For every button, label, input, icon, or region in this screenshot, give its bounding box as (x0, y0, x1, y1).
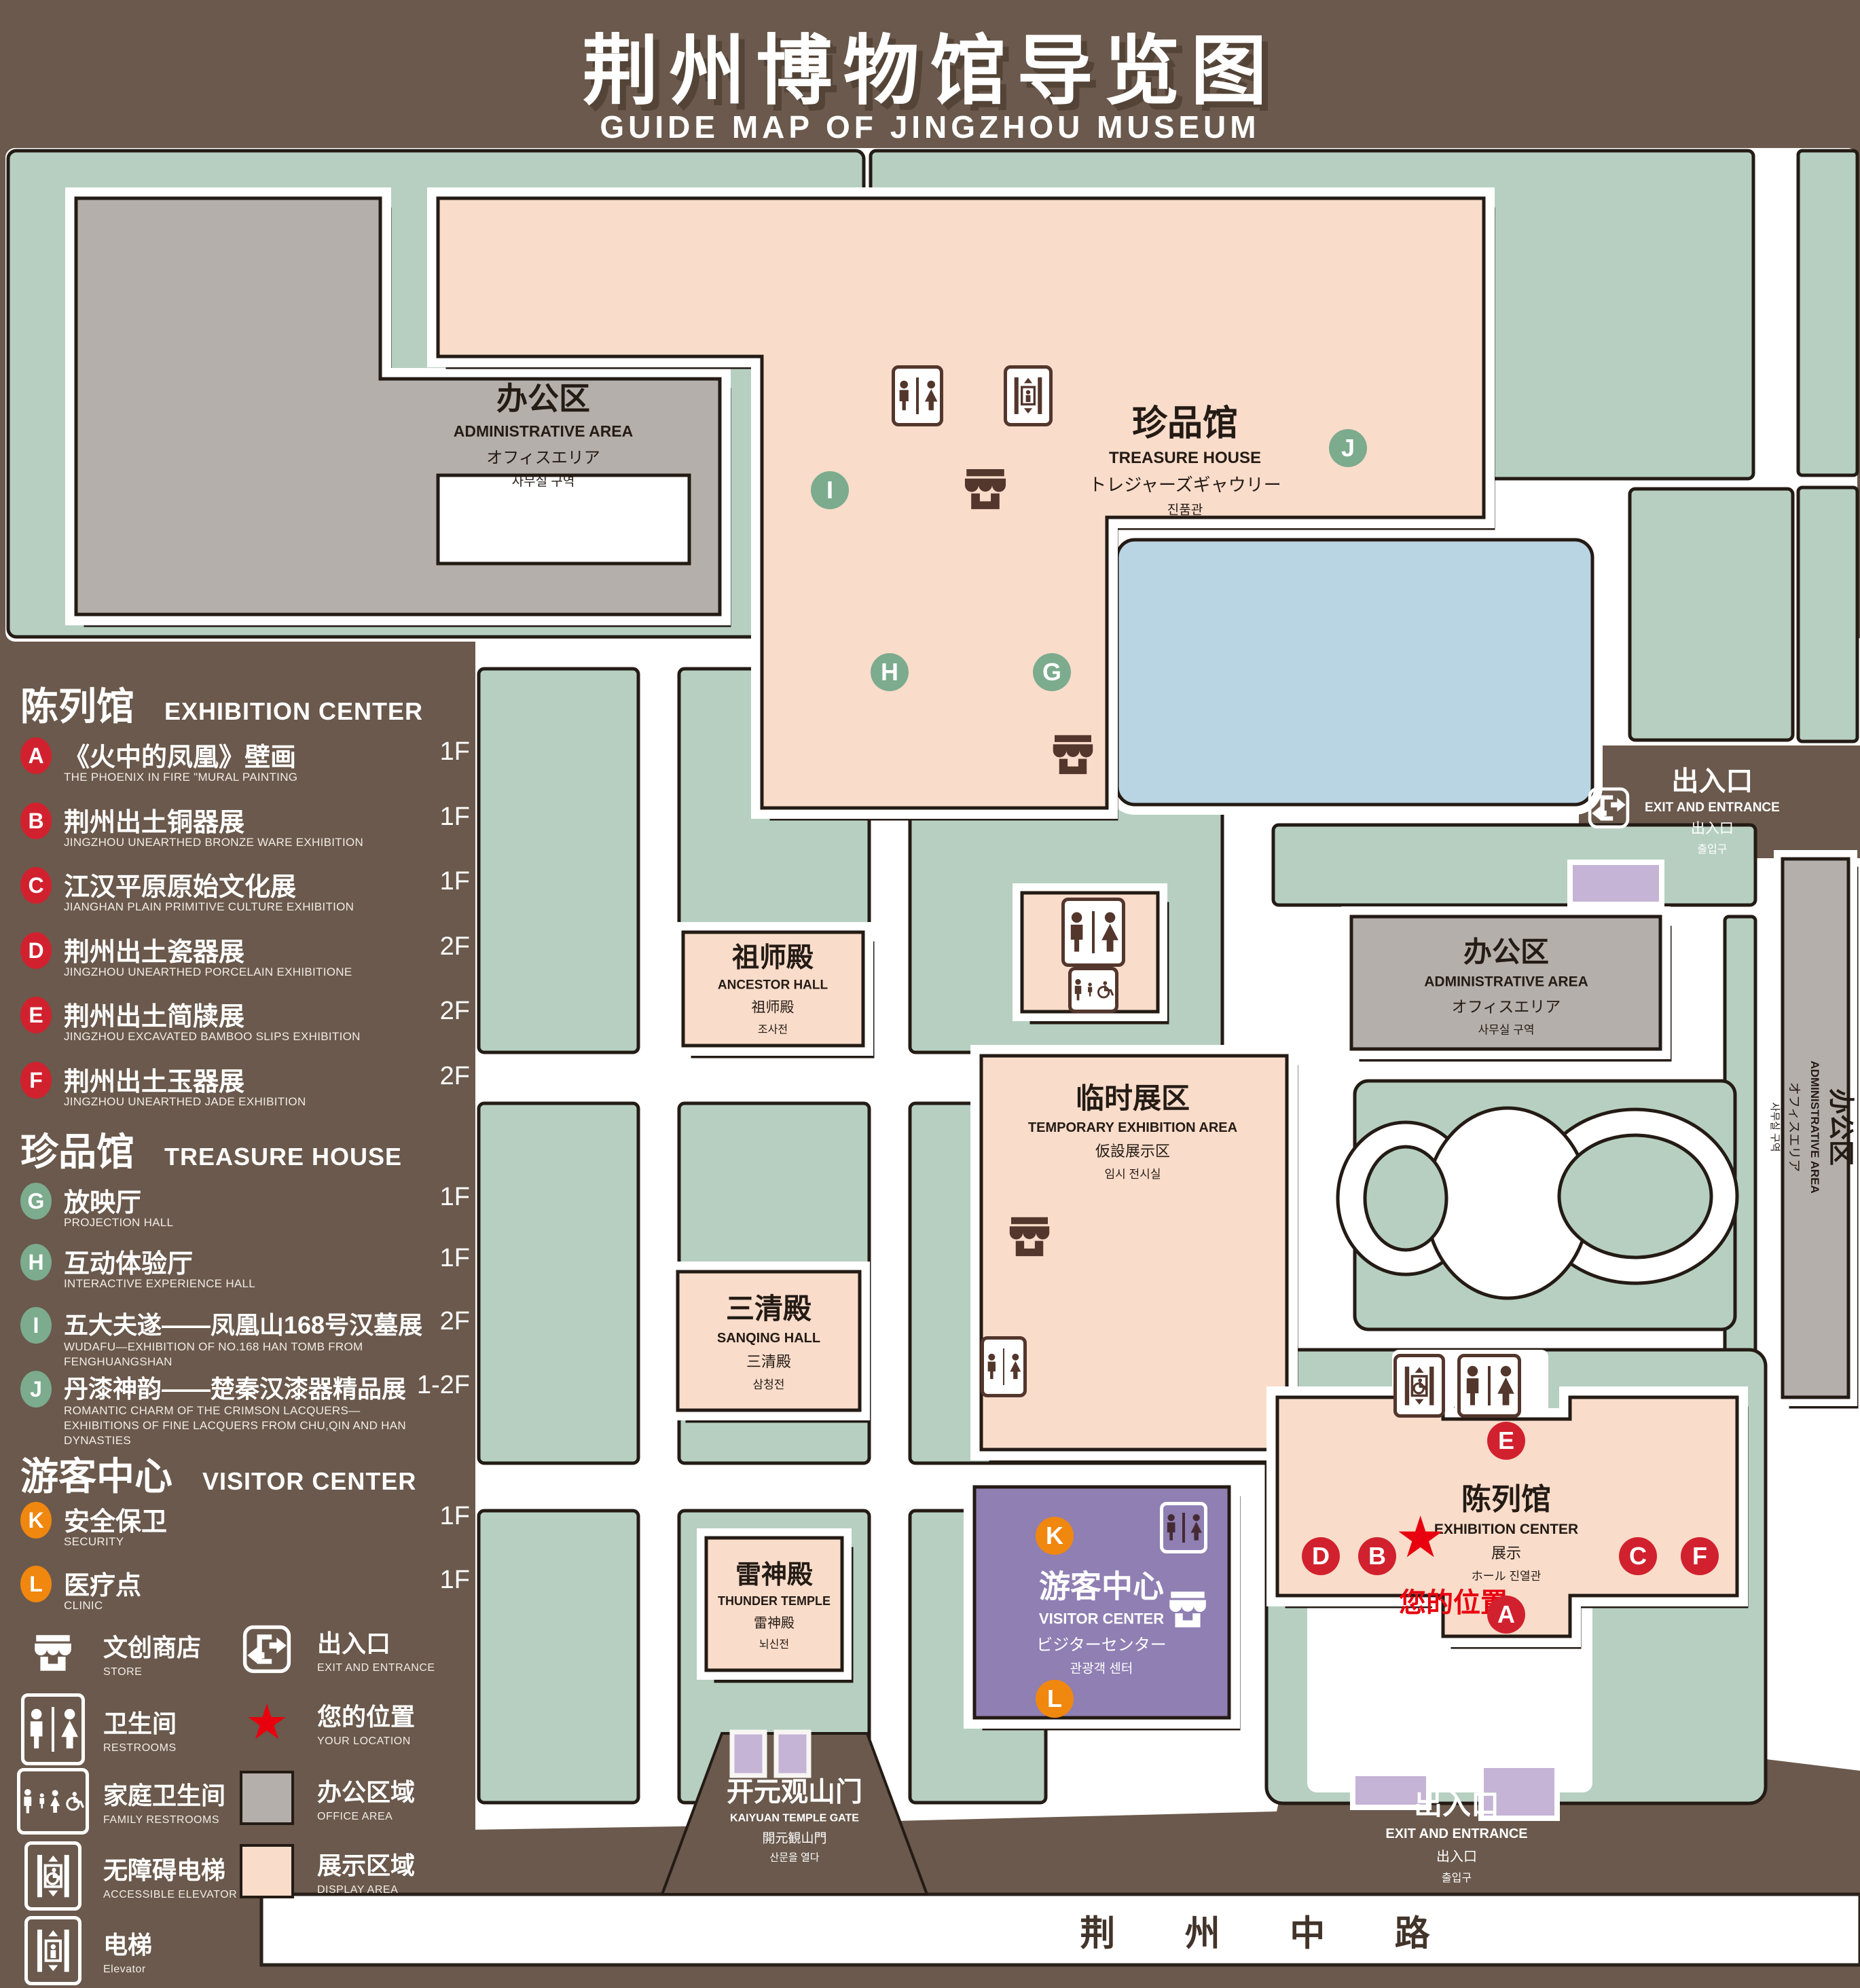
item-title: 安全保卫 (64, 1501, 167, 1538)
sidebar-item-H: H 互动体验厅 1F INTERACTIVE EXPERIENCE HALL (20, 1244, 470, 1302)
label-exit-bottom-right: 出入口 EXIT AND ENTRANCE 出入口 출입구 (1385, 1782, 1527, 1885)
item-floor: 1F (440, 1183, 470, 1212)
road (261, 1894, 1860, 1965)
exit-icon (242, 1625, 291, 1674)
marker-badge-I: I (20, 1307, 52, 1344)
restrooms-icon (1061, 898, 1125, 967)
elevator-icon (24, 1916, 81, 1985)
sidebar-item-C: C 江汉平原原始文化展 1F JIANGHAN PLAIN PRIMITIVE … (20, 867, 470, 925)
your-location-star-icon: ★ (1395, 1509, 1446, 1566)
item-floor: 1F (440, 867, 470, 896)
label-admin-right: 办公区 ADMINISTRATIVE AREA オフィスエリア 사무실 구역 (1424, 929, 1588, 1037)
legend-store: 文创商店STORE (20, 1628, 201, 1678)
restrooms-icon (1160, 1502, 1207, 1553)
marker-badge-G: G (20, 1183, 52, 1219)
section-title-zh: 珍品馆 (20, 1122, 134, 1177)
display-area-swatch (240, 1844, 294, 1898)
sidebar-item-J: J 丹漆神韵——楚秦汉漆器精品展 1-2F ROMANTIC CHARM OF … (20, 1371, 470, 1429)
item-floor: 1F (440, 737, 470, 767)
marker-badge-D: D (20, 932, 52, 969)
label-thunder-temple: 雷神殿 THUNDER TEMPLE 雷神殿 뇌신전 (718, 1553, 831, 1651)
label-temporary-exhibition: 临时展区 TEMPORARY EXHIBITION AREA 仮設展示区 임시 … (1028, 1075, 1237, 1181)
item-floor: 1-2F (417, 1371, 470, 1400)
lake (1117, 540, 1592, 805)
map-marker-F: F (1681, 1537, 1719, 1575)
family-restrooms-icon (1068, 967, 1118, 1013)
map-marker-I: I (811, 471, 849, 509)
marker-badge-H: H (20, 1244, 52, 1281)
store-icon (960, 466, 1010, 513)
office-area-swatch (240, 1771, 294, 1825)
store-icon (1048, 732, 1097, 778)
item-subtitle: JINGZHOU EXCAVATED BAMBOO SLIPS EXHIBITI… (64, 1029, 431, 1044)
map-marker-J: J (1329, 429, 1367, 467)
legend-family-restrooms: 家庭卫生间FAMILY RESTROOMS (20, 1768, 225, 1835)
item-title: 丹漆神韵——楚秦汉漆器精品展 (64, 1369, 406, 1405)
elevator-icon (1004, 365, 1053, 426)
item-title: 互动体验厅 (64, 1242, 193, 1280)
label-visitor-center: 游客中心 VISITOR CENTER ビジターセンター 관광객 센터 (1036, 1562, 1167, 1677)
your-location-star-icon: ★ (245, 1698, 289, 1747)
sidebar-item-L: L 医疗点 1F CLINIC (20, 1566, 470, 1624)
section-title-en: EXHIBITION CENTER (164, 697, 423, 726)
map-marker-G: G (1033, 653, 1071, 691)
sidebar-item-I: I 五大夫遂——凤凰山168号汉墓展 2F WUDAFU—EXHIBITION … (20, 1307, 470, 1365)
sidebar-item-F: F 荆州出土玉器展 2F JINGZHOU UNEARTHED JADE EXH… (20, 1062, 470, 1120)
legend-accessible-elevator: 无障碍电梯ACCESSIBLE ELEVATOR (20, 1841, 237, 1911)
legend-display-area: 展示区域DISPLAY AREA (234, 1844, 415, 1898)
item-title: 荆州出土玉器展 (64, 1061, 244, 1098)
map-marker-L: L (1036, 1680, 1074, 1718)
sidebar-section-treasure-house: 珍品馆 TREASURE HOUSE (20, 1122, 402, 1177)
marker-badge-J: J (20, 1371, 52, 1407)
item-subtitle: JINGZHOU UNEARTHED BRONZE WARE EXHIBITIO… (64, 835, 431, 850)
marker-badge-C: C (20, 867, 52, 904)
item-subtitle: WUDAFU—EXHIBITION OF NO.168 HAN TOMB FRO… (64, 1340, 431, 1369)
map-marker-B: B (1358, 1537, 1396, 1575)
marker-badge-A: A (20, 737, 52, 774)
marker-badge-L: L (20, 1566, 52, 1602)
item-subtitle: CLINIC (64, 1598, 431, 1613)
item-floor: 1F (440, 1566, 470, 1595)
map-marker-K: K (1036, 1517, 1074, 1555)
item-title: 五大夫遂——凤凰山168号汉墓展 (64, 1306, 422, 1341)
label-admin-right-vertical: 办公区 ADMINISTRATIVE AREA オフィスエリア 사무실 구역 (1768, 1061, 1860, 1194)
restrooms-icon (21, 1693, 85, 1765)
item-subtitle: SECURITY (64, 1534, 431, 1549)
item-subtitle: THE PHOENIX IN FIRE "MURAL PAINTING (64, 770, 431, 785)
item-floor: 2F (440, 932, 470, 961)
legend-exit: 出入口EXIT AND ENTRANCE (234, 1624, 435, 1674)
label-exhibition-center: 陈列馆 EXHIBITION CENTER 展示 ホール 진열관 (1434, 1475, 1578, 1583)
item-subtitle: PROJECTION HALL (64, 1215, 431, 1230)
marker-badge-F: F (20, 1062, 52, 1099)
item-floor: 2F (440, 1307, 470, 1336)
section-title-zh: 陈列馆 (20, 676, 134, 731)
legend-restrooms: 卫生间RESTROOMS (20, 1693, 177, 1765)
section-title-en: TREASURE HOUSE (164, 1143, 402, 1171)
sidebar-item-B: B 荆州出土铜器展 1F JINGZHOU UNEARTHED BRONZE W… (20, 803, 470, 861)
item-title: 荆州出土简牍展 (64, 995, 244, 1033)
garden (1338, 1108, 1737, 1298)
restrooms-icon (892, 365, 943, 426)
item-subtitle: JINGZHOU UNEARTHED JADE EXHIBITION (64, 1094, 431, 1109)
item-title: 放映厅 (64, 1181, 141, 1219)
section-title-en: VISITOR CENTER (202, 1467, 416, 1496)
map-marker-E: E (1487, 1422, 1525, 1460)
guide-map-poster: 荆州博物馆导览图 GUIDE MAP OF JINGZHOU MUSEUM (0, 0, 1860, 1988)
label-sanqing-hall: 三清殿 SANQING HALL 三清殿 삼청전 (717, 1286, 820, 1392)
item-floor: 1F (440, 1244, 470, 1273)
exit-top-right: 出入口 EXIT AND ENTRANCE 出入口 출입구 (1588, 759, 1780, 856)
sidebar-section-exhibition-center: 陈列馆 EXHIBITION CENTER (20, 676, 423, 731)
item-floor: 2F (440, 997, 470, 1026)
sidebar-item-K: K 安全保卫 1F SECURITY (20, 1502, 470, 1560)
item-title: 荆州出土瓷器展 (64, 931, 244, 968)
map-marker-A: A (1487, 1596, 1525, 1634)
item-title: 江汉平原原始文化展 (64, 866, 296, 903)
marker-badge-B: B (20, 803, 52, 839)
legend-elevator: 电梯Elevator (20, 1916, 152, 1985)
family-restrooms-icon (17, 1768, 89, 1835)
item-title: 荆州出土铜器展 (64, 801, 244, 839)
item-title: 医疗点 (64, 1564, 141, 1602)
restrooms-icon (981, 1336, 1027, 1397)
label-ancestor-hall: 祖师殿 ANCESTOR HALL 祖师殿 조사전 (718, 936, 828, 1037)
sidebar-item-E: E 荆州出土简牍展 2F JINGZHOU EXCAVATED BAMBOO S… (20, 997, 470, 1055)
accessible-elevator-icon (24, 1841, 81, 1911)
store-icon (31, 1632, 75, 1674)
restrooms-icon (1457, 1354, 1521, 1418)
sidebar-item-G: G 放映厅 1F PROJECTION HALL (20, 1183, 470, 1241)
item-floor: 1F (440, 803, 470, 832)
exit-icon (1588, 787, 1630, 829)
road-name: 荆 州 中 路 (1080, 1905, 1459, 1956)
marker-badge-K: K (20, 1502, 52, 1539)
legend-office-area: 办公区域OFFICE AREA (234, 1771, 415, 1825)
store-icon (1005, 1214, 1054, 1260)
store-icon (1165, 1589, 1210, 1631)
map-marker-D: D (1302, 1537, 1340, 1575)
item-floor: 1F (440, 1502, 470, 1531)
item-subtitle: ROMANTIC CHARM OF THE CRIMSON LACQUERS—E… (64, 1403, 431, 1448)
marker-badge-E: E (20, 997, 52, 1033)
map-marker-H: H (871, 653, 909, 691)
item-subtitle: INTERACTIVE EXPERIENCE HALL (64, 1276, 431, 1291)
item-title: 《火中的凤凰》壁画 (64, 736, 296, 773)
item-subtitle: JINGZHOU UNEARTHED PORCELAIN EXHIBITIONE (64, 965, 431, 980)
section-title-zh: 游客中心 (20, 1446, 172, 1501)
sidebar-item-A: A 《火中的凤凰》壁画 1F THE PHOENIX IN FIRE "MURA… (20, 737, 470, 796)
label-kaiyuan-gate: 开元观山门 KAIYUAN TEMPLE GATE 開元観山門 산문을 열다 (727, 1770, 862, 1864)
item-subtitle: JIANGHAN PLAIN PRIMITIVE CULTURE EXHIBIT… (64, 900, 431, 915)
accessible-elevator-icon (1393, 1354, 1445, 1418)
label-treasure-house: 珍品馆 TREASURE HOUSE トレジャーズギャウリー 진품관 (1089, 394, 1281, 518)
sidebar-item-D: D 荆州出土瓷器展 2F JINGZHOU UNEARTHED PORCELAI… (20, 932, 470, 991)
legend-your-location: ★ 您的位置YOUR LOCATION (234, 1697, 415, 1748)
label-exit-top-right: 出入口 EXIT AND ENTRANCE 出入口 출입구 (1645, 759, 1780, 856)
sidebar-section-visitor-center: 游客中心 VISITOR CENTER (20, 1446, 416, 1501)
item-floor: 2F (440, 1062, 470, 1091)
label-admin-top-left: 办公区 ADMINISTRATIVE AREA オフィスエリア 사무실 구역 (454, 374, 634, 490)
map-marker-C: C (1619, 1537, 1657, 1575)
